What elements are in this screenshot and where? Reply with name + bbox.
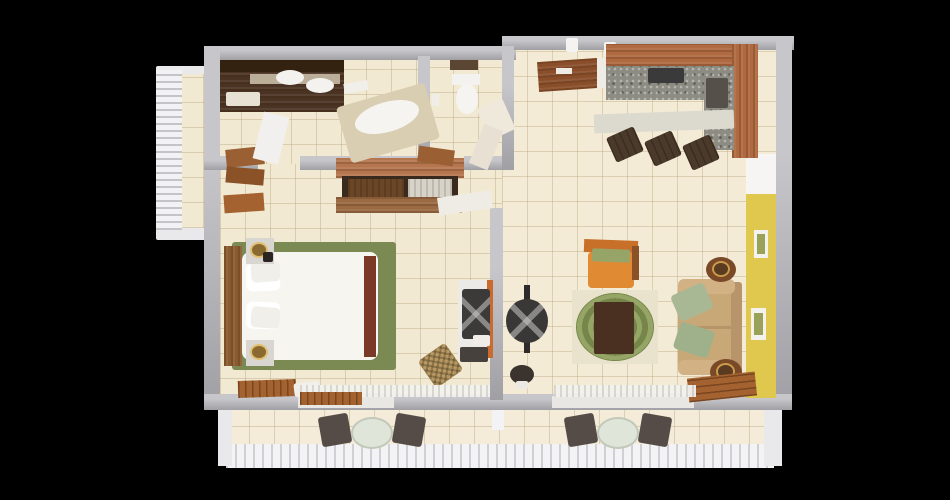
lounge-chair-arm — [632, 246, 639, 280]
bedroom-bench — [238, 379, 297, 398]
headboard — [224, 246, 242, 366]
hall-door-leaf-c — [223, 193, 264, 214]
vanity-towels — [226, 92, 260, 106]
entry-door-lock — [556, 68, 572, 74]
cooktop — [648, 68, 684, 83]
left-balcony-railing — [156, 70, 182, 230]
wall-right — [776, 36, 792, 410]
vanity-sink-left — [276, 70, 304, 85]
nightstand-phone — [263, 252, 273, 262]
wall-picture-art-top — [757, 234, 765, 254]
kitchen-side-cabinets — [732, 44, 758, 158]
pillow-bottom-b — [250, 306, 280, 329]
patio-chair-1-left — [318, 413, 353, 448]
patio-chair-1-right — [392, 413, 427, 448]
nightstand-lamp-bottom — [250, 344, 268, 360]
lounge-chair-cushion — [592, 248, 630, 262]
living-tv — [506, 299, 548, 343]
yellow-accent-wall — [746, 188, 776, 398]
patio-chair-2-right — [638, 413, 673, 448]
patio-table-2 — [597, 417, 639, 449]
wall-picture-art-bottom — [754, 313, 763, 335]
floor-lamp-base — [516, 381, 528, 389]
kitchen-oven-rack — [706, 78, 728, 108]
living-door-threshold — [552, 396, 694, 408]
toilet-paper-holder — [432, 94, 439, 106]
patio-table-1 — [351, 417, 393, 449]
entry-door-frame — [597, 58, 606, 88]
bedroom-threshold-wood — [300, 392, 362, 405]
desk-accessory — [473, 335, 490, 346]
hall-door-leaf-b — [225, 166, 264, 185]
side-table-lamp-top — [712, 261, 730, 277]
bed-foot-throw — [364, 256, 376, 357]
wall-sconce-left — [566, 38, 578, 52]
floorplan-canvas — [0, 0, 950, 500]
accent-wall-white-panel — [746, 154, 776, 194]
bottom-balcony-railing — [226, 444, 774, 468]
wc-picture-frame — [450, 60, 478, 70]
living-curtain — [554, 385, 696, 397]
wall-top-bathroom — [204, 46, 516, 60]
bedroom-tv — [462, 289, 490, 339]
patio-chair-2-left — [564, 413, 599, 448]
toilet-bowl — [456, 84, 478, 114]
wall-left — [204, 46, 220, 410]
entry-door-leaf — [537, 58, 599, 92]
desk-tray — [460, 347, 488, 362]
coffee-table — [594, 302, 634, 354]
vanity-sink-right — [306, 78, 334, 93]
